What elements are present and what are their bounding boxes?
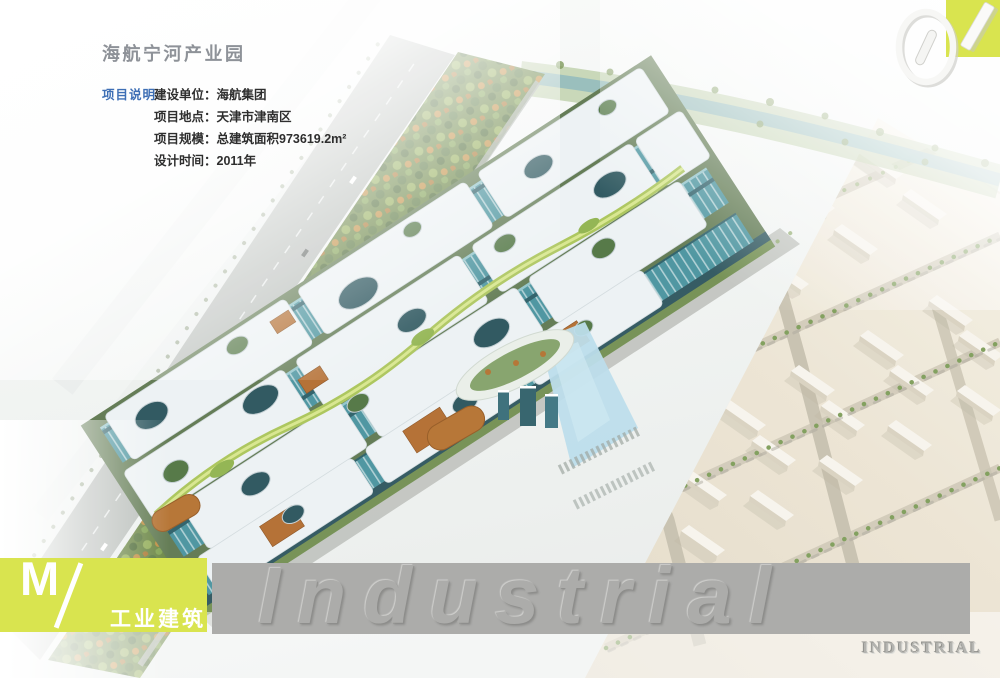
watermark-band: Industrial (212, 563, 970, 634)
digit-zero-counter (914, 29, 938, 66)
watermark-text: Industrial (258, 563, 788, 634)
chapter-title: 工业建筑 (110, 603, 206, 633)
info-value-text: 天津市津南区 (217, 110, 292, 124)
chapter-letter: M (20, 551, 59, 606)
presentation-board: 海航宁河产业园 项目说明 建设单位：海航集团 项目地点：天津市津南区 项目规模：… (0, 0, 1000, 678)
info-value-text: 总建筑面积973619.2m² (217, 132, 347, 146)
info-label-text: 设计时间： (154, 154, 217, 168)
info-label-text: 项目规模： (154, 132, 217, 146)
info-label-text: 项目地点： (154, 110, 217, 124)
info-value-text: 2011年 (217, 154, 257, 168)
info-row-client: 建设单位：海航集团 (154, 84, 346, 106)
info-label-text: 建设单位： (154, 88, 217, 102)
info-row-scale: 项目规模：总建筑面积973619.2m² (154, 128, 346, 150)
info-value-text: 海航集团 (217, 88, 267, 102)
project-info-label: 项目说明 (102, 84, 156, 103)
info-row-date: 设计时间：2011年 (154, 150, 346, 172)
project-info: 建设单位：海航集团 项目地点：天津市津南区 项目规模：总建筑面积973619.2… (154, 84, 346, 172)
info-row-location: 项目地点：天津市津南区 (154, 106, 346, 128)
chapter-band: M 工业建筑 (0, 558, 207, 632)
industrial-corner-label: INDUSTRIAL (862, 640, 982, 658)
page-index-badge (840, 0, 1000, 100)
page-title: 海航宁河产业园 (102, 40, 246, 66)
